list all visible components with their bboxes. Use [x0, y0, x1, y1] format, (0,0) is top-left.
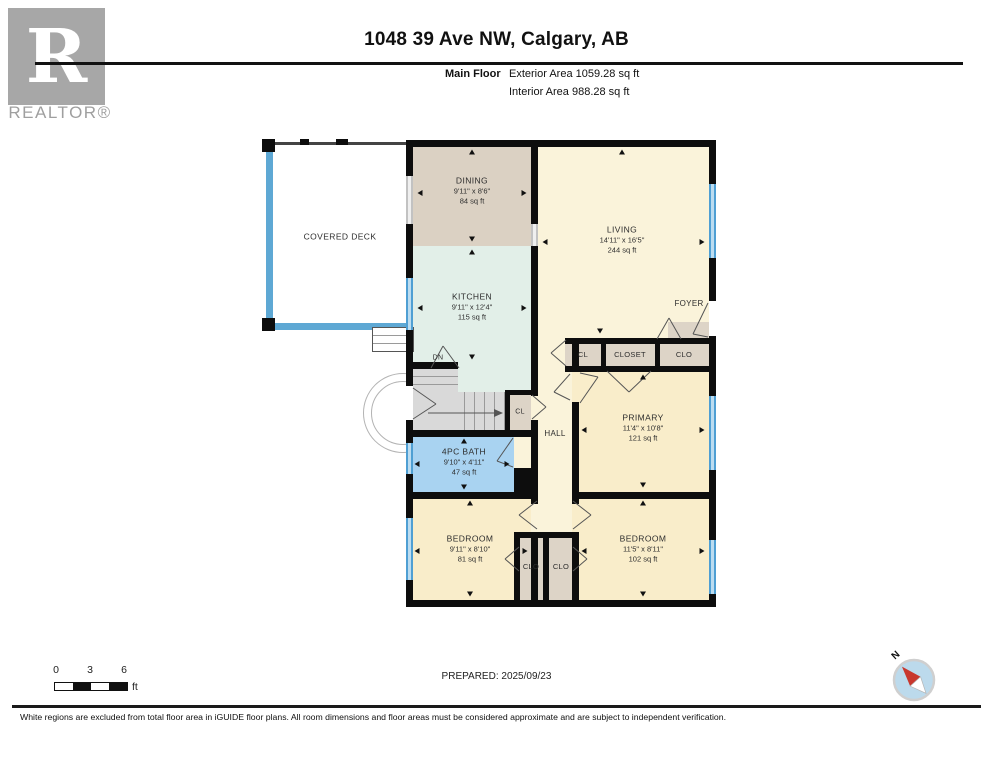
dimension-arrow — [505, 461, 510, 467]
dimension-arrow — [640, 592, 646, 597]
dimension-arrow — [597, 329, 603, 334]
room-label-bedroom-left: BEDROOM 9'11" x 8'10" 81 sq ft — [447, 534, 494, 565]
label-closet-cl: CL — [578, 350, 588, 360]
dimension-arrow — [582, 548, 587, 554]
header-divider — [35, 62, 963, 65]
realtor-logo: R — [8, 8, 105, 105]
dimension-arrow — [543, 239, 548, 245]
dimension-arrow — [415, 461, 420, 467]
label-closet-main: CLOSET — [614, 350, 646, 360]
dimension-arrow — [467, 592, 473, 597]
dimension-arrow — [640, 375, 646, 380]
label-closet-bottom-right: CLO — [553, 562, 569, 572]
label-stair-closet: CL — [515, 407, 525, 416]
realtor-logo-text: REALTOR® — [2, 103, 118, 123]
dimension-arrow — [415, 548, 420, 554]
room-label-covered-deck: COVERED DECK — [304, 231, 377, 242]
room-label-bath: 4PC BATH 9'10" x 4'11" 47 sq ft — [442, 447, 486, 478]
realtor-logo-letter: R — [26, 20, 88, 94]
dimension-arrow — [700, 239, 705, 245]
dimension-arrow — [582, 427, 587, 433]
room-label-dining: DINING 9'11" x 8'6" 84 sq ft — [454, 176, 490, 207]
dimension-arrow — [700, 427, 705, 433]
dimension-arrow — [418, 190, 423, 196]
door-swing-overlay — [0, 0, 993, 768]
dimension-arrow — [418, 305, 423, 311]
dimension-arrow — [640, 483, 646, 488]
dimension-arrow — [640, 501, 646, 506]
dimension-arrow — [522, 305, 527, 311]
room-label-kitchen: KITCHEN 9'11" x 12'4" 115 sq ft — [452, 292, 493, 323]
dimension-arrow — [523, 548, 528, 554]
dimension-arrow — [461, 485, 467, 490]
room-label-primary: PRIMARY 11'4" x 10'8" 121 sq ft — [622, 413, 663, 444]
dimension-arrow — [469, 237, 475, 242]
dimension-arrow — [469, 150, 475, 155]
label-closet-clo: CLO — [676, 350, 692, 360]
room-label-living: LIVING 14'11" x 16'5" 244 sq ft — [600, 225, 645, 256]
dimension-arrow — [469, 250, 475, 255]
dimension-arrow — [522, 190, 527, 196]
dimension-arrow — [469, 355, 475, 360]
room-label-hall: HALL — [544, 429, 565, 439]
dimension-arrow — [461, 439, 467, 444]
dimension-arrow — [619, 150, 625, 155]
dimension-arrow — [700, 548, 705, 554]
room-label-foyer: FOYER — [674, 299, 703, 309]
room-label-bedroom-right: BEDROOM 11'5" x 8'11" 102 sq ft — [620, 534, 667, 565]
dimension-arrow — [467, 501, 473, 506]
label-closet-bottom-left: CLO — [523, 562, 539, 572]
label-dn: DN — [433, 353, 444, 362]
